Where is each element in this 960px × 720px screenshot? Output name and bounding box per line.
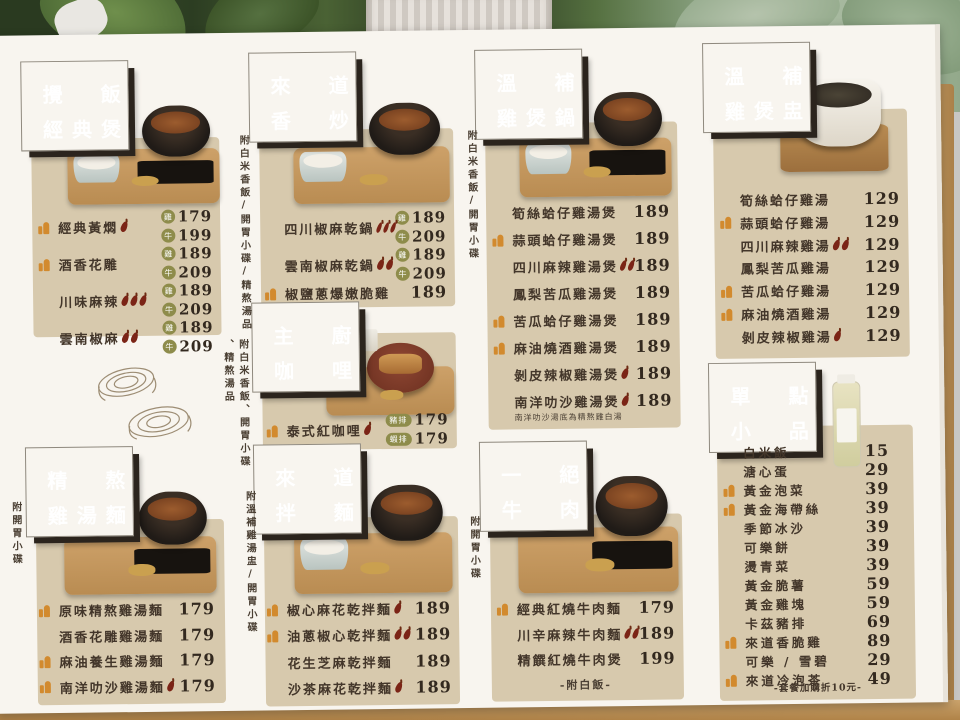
set-discount-note: -套餐加購折10元- [738,679,898,695]
item-price: 39 [866,536,890,555]
side-note: 附開胃小碟 [8,501,24,566]
item-name: 白米飯 [743,442,790,462]
item-name: 泰式紅咖哩 [287,420,362,440]
item-price: 189 [415,677,452,696]
item-list: 原味精熬雞湯麵 179 酒香花雕雞湯麵 179 麻油養生雞湯麵 179 南洋叻沙… [37,599,216,697]
menu-item-note: -附白飯- [496,674,676,693]
thumbs-up-icon [497,603,508,615]
thumbs-up-icon [267,425,278,437]
menu-item: 可樂 / 雪碧 29 [723,650,891,671]
item-name: 雲南椒麻 [59,328,119,348]
item-name: 溏心蛋 [743,461,790,481]
item-name: 油蔥椒心乾拌麵 [287,625,392,645]
item-name: 黃金雞塊 [745,594,807,614]
item-price: 189 [178,244,213,262]
beef-badge: 牛 [395,230,409,244]
chili-icon [619,260,628,272]
section-title: 主廚 咖哩 [259,309,366,398]
menu-item: 燙青菜 39 [722,555,890,576]
item-name: 川辛麻辣牛肉麵 [517,624,622,644]
item-name: 酒香花雕 [59,254,119,274]
chili-icon [129,294,139,306]
item-price: 209 [412,227,447,245]
item-list: 泰式紅咖哩 豬排179 蝦排179 [265,410,449,442]
item-price: 189 [179,318,214,336]
item-price: 189 [179,281,214,299]
chili-icon [166,680,176,692]
menu-item: 沙茶麻花乾拌麵 189 [266,677,452,698]
menu-item: 南洋叻沙雞湯麵 179 [38,676,216,697]
item-name: 沙茶麻花乾拌麵 [288,678,393,698]
item-name: 椒心麻花乾拌麵 [287,599,392,619]
section-sides: 單點 小品 白米飯 15 溏心蛋 29 黃金泡菜 39 [714,361,918,701]
noodle-bowl [138,491,207,545]
pork-cutlet-badge: 豬排 [385,413,411,426]
side-note: 附溫補雞湯盅/開胃小碟 [241,491,258,635]
chili-icon [138,294,148,306]
item-name: 雲南椒麻乾鍋 [285,255,375,275]
price-group: 雞189 牛209 [395,208,447,246]
item-name: 南洋叻沙雞湯煲 [514,391,619,411]
section-title-line: 雞湯麵 [48,498,126,534]
menu-item: 椒心麻花乾拌麵 189 [265,598,451,619]
price-group: 豬排179 蝦排179 [385,410,449,448]
item-price: 209 [179,300,214,318]
chili-icon [375,222,383,234]
menu-item: 酒香花雕 雞189 牛209 [36,244,212,283]
section-title-line: 咖哩 [274,353,352,389]
menu-item: 原味精熬雞湯麵 179 [37,599,215,620]
item-price: 189 [415,625,452,644]
section-title: 攪飯 經典煲 [28,68,135,157]
item-note: -附白飯- [560,676,612,693]
item-name: 苦瓜蛤仔雞湯煲 [513,310,618,330]
section-title-line: 主廚 [273,318,351,354]
item-name: 精饌紅燒牛肉煲 [517,649,622,669]
item-name: 蒜頭蛤仔雞湯煲 [512,229,617,249]
item-price: 189 [634,202,671,221]
item-name: 筍絲蛤仔雞湯煲 [512,202,617,222]
item-price: 129 [863,189,900,208]
section-title-line: 來道 [275,460,353,496]
item-name: 苦瓜蛤仔雞湯 [741,281,831,301]
item-price: 189 [415,651,452,670]
item-name: 季節冰沙 [744,518,806,538]
menu-item: 精饌紅燒牛肉煲 199 [495,649,675,670]
item-list: 經典紅燒牛肉麵 179 川辛麻辣牛肉麵 189 精饌紅燒牛肉煲 199 -附白飯… [495,597,676,693]
menu-item: 麻油燒酒雞湯煲 189 [492,337,672,358]
item-name: 鳳梨苦瓜雞湯煲 [513,283,618,303]
chili-icon [393,628,403,640]
item-price: 129 [864,234,901,253]
thumbs-up-icon [39,605,50,617]
thumbs-up-icon [725,636,736,648]
item-list: 四川椒麻乾鍋 雞189 牛209 雲南椒麻乾鍋 雞189 牛209 椒鹽蔥爆嫩脆… [262,208,447,300]
item-name: 花生芝麻乾拌麵 [287,652,392,672]
item-price: 59 [867,593,891,612]
item-price: 179 [179,650,216,669]
side-dish [380,390,403,400]
chili-icon [620,367,630,379]
section-title-line: 雞煲鍋 [497,101,575,137]
item-name: 南洋叻沙雞湯麵 [60,677,165,697]
section-title: 溫補 雞煲盅 [710,50,817,139]
side-note: 附白米香飯/開胃小碟 [463,130,480,261]
item-price: 189 [639,623,676,642]
side-dish [586,559,615,572]
section-title: 來道 香炒 [256,59,363,148]
item-name: 麻油燒酒雞湯煲 [514,337,619,357]
menu-item: 經典黃燜 雞179 牛199 [36,207,212,246]
decorative-coil-sketch [92,355,203,452]
thumbs-up-icon [39,656,50,668]
menu-item: 四川麻辣雞湯 129 [718,234,900,255]
chicken-badge: 雞 [161,210,175,224]
side-note-line: 附白米香飯、開胃小碟 [235,339,252,469]
chili-icon [119,220,129,232]
item-name: 麻油養生雞湯麵 [59,651,164,671]
item-price: 189 [634,229,671,248]
item-name: 麻油燒酒雞湯 [741,304,831,324]
claypot [141,105,210,157]
thumbs-up-icon [38,222,49,234]
chicken-badge: 雞 [162,284,176,298]
item-name: 筍絲蛤仔雞湯 [740,190,830,210]
menu-item: 剝皮辣椒雞湯煲 189 [492,364,672,385]
item-price: 129 [864,257,901,276]
menu-photo-scene: 攪飯 經典煲 經典黃燜 雞179 牛199 [0,0,960,720]
item-list: 椒心麻花乾拌麵 189 油蔥椒心乾拌麵 189 花生芝麻乾拌麵 189 沙茶麻花… [265,598,452,698]
menu-item: 黃金泡菜 39 [721,479,889,500]
item-price: 15 [865,441,889,460]
menu-item: 季節冰沙 39 [722,517,890,538]
thumbs-up-icon [721,308,732,320]
soup-pot [593,92,662,147]
section-title-line: 溫補 [724,59,802,95]
section-title: 精熬 雞湯麵 [33,454,140,543]
thumbs-up-icon [267,630,278,642]
section-claypot-rice: 攪飯 經典煲 經典黃燜 雞179 牛199 [28,67,223,337]
item-name: 酒香花雕雞湯麵 [59,625,164,645]
chili-icon [121,331,131,343]
item-price: 189 [411,282,448,301]
section-chicken-soup-noodles: 精熬 雞湯麵 原味精熬雞湯麵 179 酒香花雕雞湯麵 179 [33,453,228,705]
chicken-badge: 雞 [395,248,409,262]
item-list: 筍絲蛤仔雞湯 129 蒜頭蛤仔雞湯 129 四川麻辣雞湯 129 鳳梨苦瓜雞湯 … [718,189,902,347]
chili-icon [394,681,404,693]
price-group: 雞189 牛209 [162,281,214,319]
chili-icon [385,258,395,270]
price-group: 雞189 牛209 [162,318,214,356]
menu-item: 苦瓜蛤仔雞湯 129 [719,280,901,301]
rice-bowl [73,153,119,183]
side-dish [128,564,155,576]
item-name: 燙青菜 [744,556,791,576]
side-dish [359,174,387,185]
rice-bowl [300,151,347,182]
item-price: 179 [414,429,449,447]
menu-item: 可樂餅 39 [722,536,890,557]
menu-item: 川辛麻辣牛肉麵 189 [495,623,675,644]
item-name: 四川麻辣雞湯煲 [513,256,618,276]
menu-item: 雲南椒麻 雞189 牛209 [37,318,213,357]
menu-item: 川味麻辣 雞189 牛209 [37,281,213,320]
side-note: 附開胃小碟 [466,516,482,581]
item-name: 川味麻辣 [59,291,119,311]
item-price: 59 [866,574,890,593]
item-price: 209 [179,337,214,355]
item-price: 179 [414,410,449,428]
item-list: 白米飯 15 溏心蛋 29 黃金泡菜 39 黃金海帶絲 39 [721,441,892,675]
menu-item: 椒鹽蔥爆嫩脆雞 189 [263,282,447,303]
menu-item: 麻油養生雞湯麵 179 [37,650,215,671]
section-title: 一絕 牛肉 [487,448,594,537]
section-dry-noodles: 來道 拌麵 椒心麻花乾拌麵 189 油蔥椒心乾拌麵 [261,450,462,706]
chili-icon [376,258,386,270]
item-price: 189 [414,598,451,617]
price-group: 雞189 牛209 [395,245,447,283]
section-title: 來道 拌麵 [261,451,368,540]
section-title-line: 單點 [730,379,808,415]
beef-noodle-bowl [596,476,669,537]
menu-item: 黃金海帶絲 39 [722,498,890,519]
thumbs-up-icon [39,259,50,271]
menu-item: 苦瓜蛤仔雞湯煲 189 [491,310,671,331]
chili-icon [833,330,843,342]
item-price: 189 [635,283,672,302]
shrimp-cutlet-badge: 蝦排 [385,432,411,445]
side-note: 附白米香飯/開胃小碟/精熬湯品 [235,135,252,332]
chili-icon [120,294,130,306]
section-title-line: 經典煲 [43,112,121,148]
item-name: 黃金海帶絲 [744,499,822,519]
item-price: 189 [635,337,672,356]
menu-item: 南洋叻沙雞湯煲 189 南洋叻沙湯底為精熬雞白湯 [492,391,672,424]
menu-item: 鳳梨苦瓜雞湯煲 189 [491,283,671,304]
section-title-line: 來道 [270,68,348,104]
menu-item: 剝皮辣椒雞湯 129 [720,326,902,347]
section-beef: 一絕 牛肉 經典紅燒牛肉麵 179 川辛麻辣牛肉麵 189 [487,447,686,701]
menu-item: 雲南椒麻乾鍋 雞189 牛209 [263,245,447,284]
menu-item: 四川麻辣雞湯煲 189 [491,256,671,277]
item-price: 189 [635,310,672,329]
side-note-line: 、精熬湯品 [220,339,237,469]
item-price: 39 [866,517,890,536]
side-note: 附白米香飯、開胃小碟 、精熬湯品 [220,339,252,469]
beef-badge: 牛 [162,340,176,354]
side-dish [361,562,390,574]
item-price: 189 [634,256,671,275]
menu-item: 蒜頭蛤仔雞湯煲 189 [490,229,670,250]
item-name: 四川椒麻乾鍋 [284,218,374,238]
item-name: 原味精熬雞湯麵 [59,600,164,620]
section-title-line: 一絕 [501,458,579,494]
item-price: 189 [412,208,447,226]
thumbs-up-icon [265,288,276,300]
menu-item: 鳳梨苦瓜雞湯 129 [719,257,901,278]
chili-icon [363,424,373,436]
item-price: 129 [865,280,902,299]
menu-item: 酒香花雕雞湯麵 179 [37,625,215,646]
menu-item: 筍絲蛤仔雞湯煲 189 [490,202,670,223]
chili-icon [841,238,851,250]
menu-item: 白米飯 15 [721,441,889,462]
item-name: 四川麻辣雞湯 [740,235,830,255]
noodle-plate [371,484,443,541]
item-price: 89 [867,631,891,650]
section-title-line: 雞煲盅 [725,94,803,130]
item-name: 剝皮辣椒雞湯煲 [514,364,619,384]
thumbs-up-icon [492,234,503,246]
price-group: 雞189 牛209 [161,244,213,282]
chicken-badge: 雞 [161,247,175,261]
item-price: 199 [178,226,213,244]
item-name: 蒜頭蛤仔雞湯 [740,212,830,232]
item-name: 經典黃燜 [58,217,118,237]
item-name: 鳳梨苦瓜雞湯 [741,258,831,278]
section-chef-curry: 主廚 咖哩 泰式紅咖哩 豬排179 蝦排179 [259,308,459,450]
item-name: 椒鹽蔥爆嫩脆雞 [285,283,390,303]
section-title-line: 攪飯 [42,77,120,113]
thumbs-up-icon [721,286,732,298]
beef-badge: 牛 [162,303,176,317]
section-title-line: 溫補 [496,66,574,102]
item-price: 189 [636,391,673,410]
item-price: 189 [412,245,447,263]
section-title-line: 牛肉 [502,493,580,529]
thumbs-up-icon [723,484,734,496]
section-chicken-soup-cup: 溫補 雞煲盅 筍絲蛤仔雞湯 129 蒜頭蛤仔雞湯 129 四川麻辣雞湯 [710,49,912,359]
menu-item: 花生芝麻乾拌麵 189 [265,651,451,672]
chili-icon [832,238,842,250]
item-name: 來道香脆雞 [745,632,823,652]
beef-badge: 牛 [161,266,175,280]
chili-icon [621,394,631,406]
item-price: 189 [636,364,673,383]
item-note: 南洋叻沙湯底為精熬雞白湯 [515,411,673,424]
beef-badge: 牛 [161,229,175,243]
menu-item: 來道香脆雞 89 [723,631,891,652]
thumbs-up-icon [726,674,737,686]
section-title-line: 拌麵 [276,495,354,531]
price-group: 雞179 牛199 [161,207,213,245]
item-price: 179 [638,597,675,616]
item-price: 209 [412,264,447,282]
chili-icon [393,602,403,614]
menu-item: 黃金脆薯 59 [723,574,891,595]
iron-pan [369,102,440,155]
item-name: 黃金泡菜 [743,480,805,500]
menu-item: 麻油燒酒雞湯 129 [719,303,901,324]
item-name: 可樂餅 [744,537,791,557]
menu-item: 溏心蛋 29 [721,460,889,481]
section-title: 溫補 雞煲鍋 [482,57,589,146]
item-price: 209 [178,263,213,281]
menu-item: 筍絲蛤仔雞湯 129 [718,189,900,210]
item-name: 黃金脆薯 [745,575,807,595]
thumbs-up-icon [40,682,51,694]
thumbs-up-icon [267,604,278,616]
menu-item: 黃金雞塊 59 [723,593,891,614]
item-price: 39 [865,498,889,517]
item-price: 129 [865,326,902,345]
item-price: 29 [867,650,891,669]
item-price: 129 [865,303,902,322]
item-name: 卡茲豬排 [745,613,807,633]
item-price: 179 [179,676,216,695]
thumbs-up-icon [493,315,504,327]
item-name: 剝皮辣椒雞湯 [742,327,832,347]
menu-item: 經典紅燒牛肉麵 179 [495,597,675,618]
item-price: 129 [864,212,901,231]
item-price: 69 [867,612,891,631]
item-price: 179 [178,599,215,618]
section-title-line: 精熬 [47,463,125,499]
chili-icon [130,331,140,343]
thumbs-up-icon [724,503,735,515]
menu-item: 蒜頭蛤仔雞湯 129 [718,212,900,233]
item-price: 199 [639,649,676,668]
beef-badge: 牛 [395,267,409,281]
menu-board: 攪飯 經典煲 經典黃燜 雞179 牛199 [0,24,948,714]
item-price: 179 [179,625,216,644]
chili-icon [402,628,412,640]
item-price: 39 [866,555,890,574]
item-price: 29 [865,460,889,479]
item-price: 179 [178,207,213,225]
thumbs-up-icon [720,217,731,229]
item-list: 筍絲蛤仔雞湯煲 189 蒜頭蛤仔雞湯煲 189 四川麻辣雞湯煲 189 鳳梨苦瓜… [490,202,673,424]
section-stir-fry: 來道 香炒 四川椒麻乾鍋 雞189 牛209 [256,58,457,308]
item-list: 經典黃燜 雞179 牛199 酒香花雕 雞189 牛209 川味麻辣 [36,207,213,331]
chicken-badge: 雞 [162,321,176,335]
soup-bowl [300,537,348,570]
section-title-line: 香炒 [271,103,349,139]
rice-bowl [525,143,571,175]
chili-icon [623,627,632,639]
menu-item: 卡茲豬排 69 [723,612,891,633]
item-name: 經典紅燒牛肉麵 [517,598,622,618]
section-chicken-pot: 溫補 雞煲鍋 筍絲蛤仔雞湯煲 189 蒜頭蛤仔雞湯煲 [482,55,683,429]
menu-item: 四川椒麻乾鍋 雞189 牛209 [262,208,446,247]
thumbs-up-icon [494,342,505,354]
item-price: 39 [865,479,889,498]
menu-item: 油蔥椒心乾拌麵 189 [265,625,451,646]
item-name: 可樂 / 雪碧 [745,651,830,671]
